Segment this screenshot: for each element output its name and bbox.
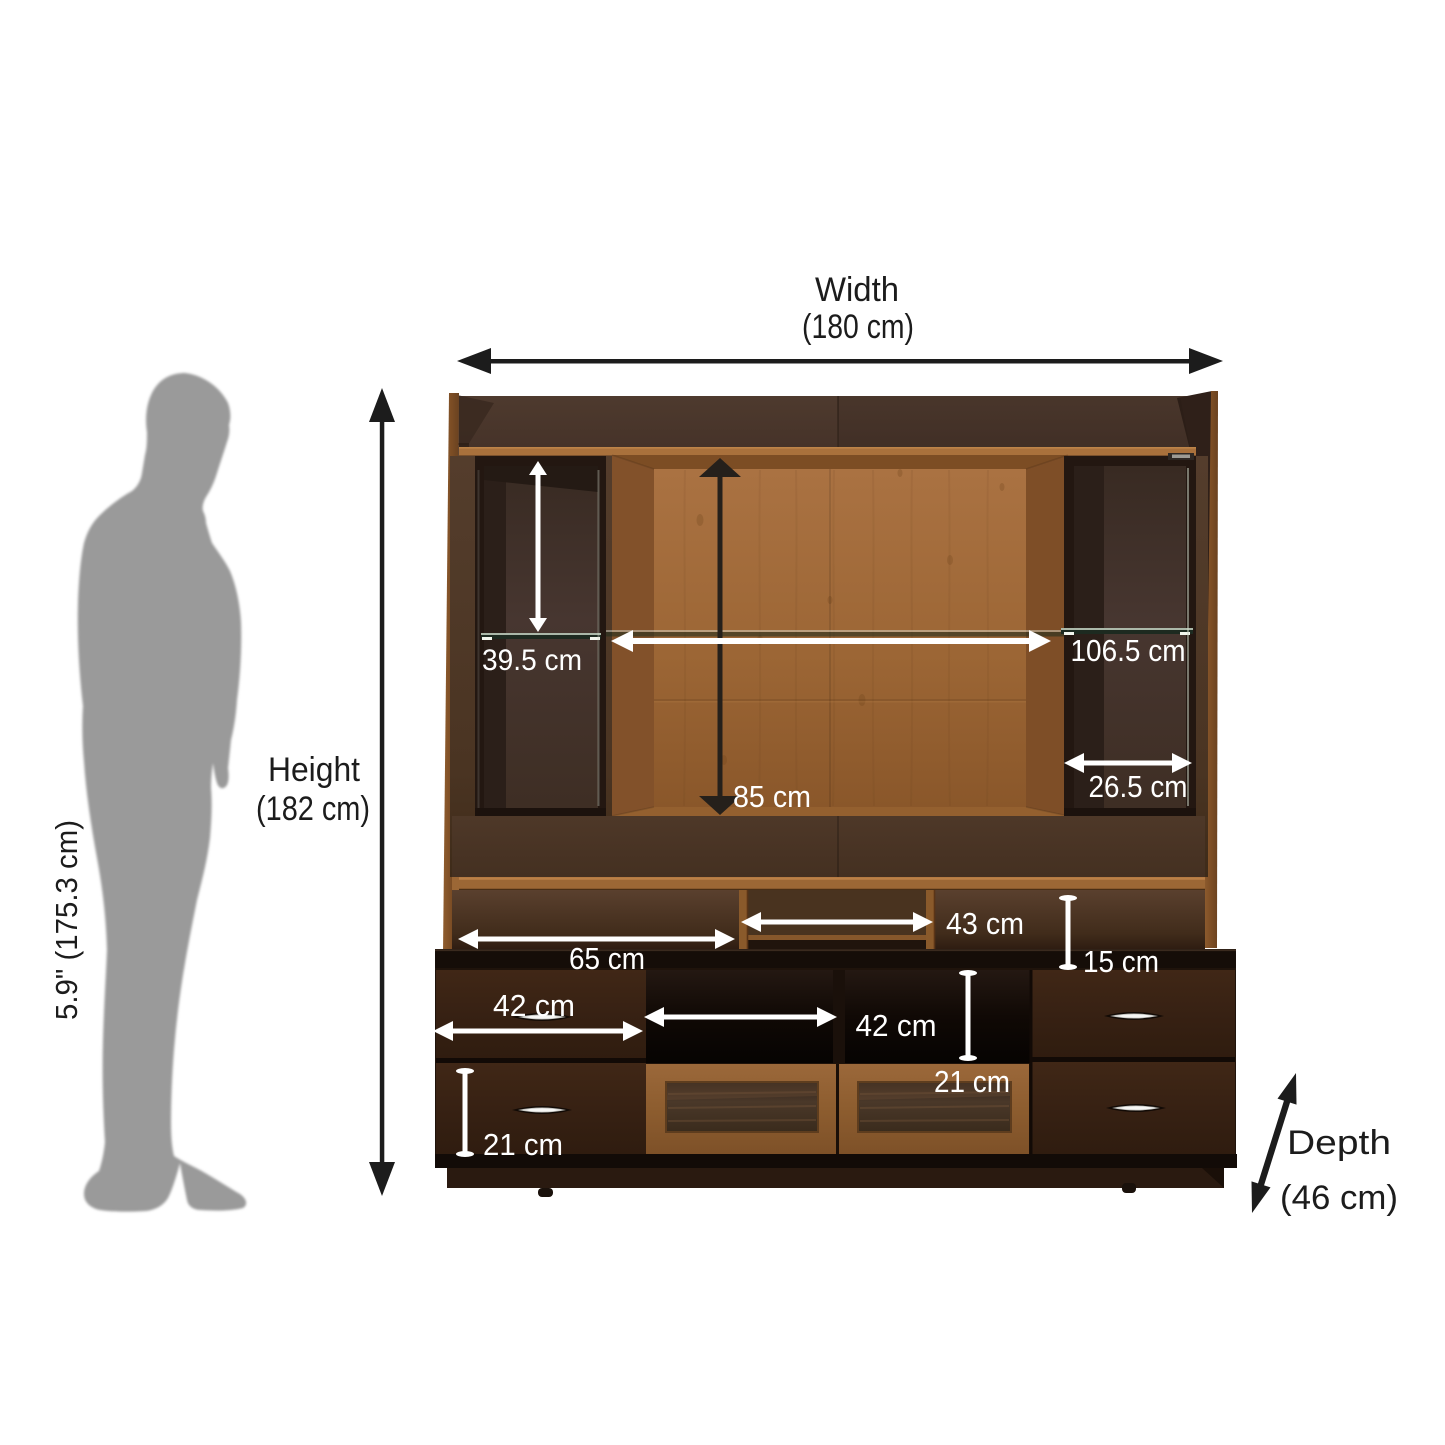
svg-text:15 cm: 15 cm <box>1083 944 1159 979</box>
svg-text:(46 cm): (46 cm) <box>1280 1179 1398 1217</box>
svg-text:(180 cm): (180 cm) <box>802 308 914 346</box>
svg-text:Depth: Depth <box>1287 1124 1391 1162</box>
svg-text:Height: Height <box>268 751 361 789</box>
svg-text:42 cm: 42 cm <box>856 1008 937 1043</box>
svg-text:21 cm: 21 cm <box>934 1064 1010 1099</box>
svg-text:39.5 cm: 39.5 cm <box>482 644 582 677</box>
svg-text:42 cm: 42 cm <box>493 988 575 1023</box>
svg-text:43 cm: 43 cm <box>946 906 1024 941</box>
svg-text:65 cm: 65 cm <box>569 941 645 976</box>
svg-text:21 cm: 21 cm <box>483 1127 563 1162</box>
svg-text:26.5 cm: 26.5 cm <box>1089 769 1188 804</box>
svg-text:85 cm: 85 cm <box>733 779 811 814</box>
svg-text:(182 cm): (182 cm) <box>256 790 370 828</box>
svg-text:5.9" (175.3 cm): 5.9" (175.3 cm) <box>49 820 84 1020</box>
svg-text:106.5 cm: 106.5 cm <box>1071 633 1186 668</box>
svg-text:Width: Width <box>815 271 899 309</box>
